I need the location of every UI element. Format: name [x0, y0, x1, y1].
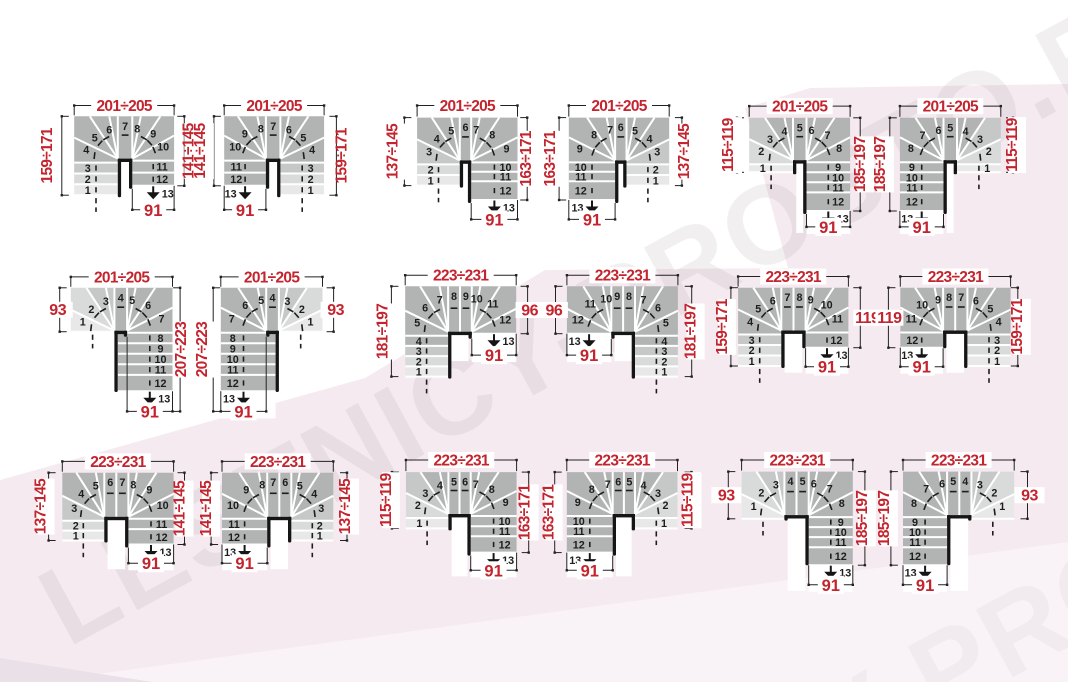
svg-text:11: 11: [573, 526, 584, 538]
svg-text:9: 9: [808, 295, 814, 307]
svg-text:5: 5: [93, 481, 99, 493]
svg-text:6: 6: [286, 124, 292, 136]
svg-text:3: 3: [655, 488, 661, 500]
svg-text:12: 12: [572, 315, 584, 327]
svg-text:3: 3: [654, 146, 660, 158]
svg-text:6: 6: [615, 477, 621, 489]
svg-text:7: 7: [119, 477, 125, 489]
svg-text:5: 5: [626, 477, 632, 489]
svg-text:91: 91: [916, 577, 934, 595]
svg-text:201÷205: 201÷205: [591, 98, 647, 115]
svg-text:91: 91: [484, 562, 502, 580]
svg-text:8: 8: [908, 143, 914, 155]
svg-text:12: 12: [499, 540, 511, 552]
svg-text:8: 8: [451, 291, 457, 303]
svg-text:7: 7: [270, 121, 276, 133]
svg-text:141÷145: 141÷145: [198, 480, 215, 536]
svg-text:7: 7: [473, 479, 479, 491]
svg-text:12: 12: [906, 197, 918, 209]
svg-text:223÷231: 223÷231: [595, 453, 651, 470]
svg-text:1: 1: [999, 501, 1005, 513]
svg-text:10: 10: [821, 300, 833, 312]
svg-text:6: 6: [462, 477, 468, 489]
svg-text:3: 3: [773, 480, 779, 492]
svg-text:11: 11: [832, 314, 843, 326]
svg-text:91: 91: [142, 555, 160, 573]
svg-text:2: 2: [299, 304, 305, 316]
svg-text:4: 4: [962, 126, 968, 138]
svg-text:163÷171: 163÷171: [517, 484, 534, 540]
svg-text:8: 8: [258, 123, 264, 135]
svg-text:1: 1: [428, 175, 434, 187]
svg-text:7: 7: [437, 294, 443, 306]
svg-text:1: 1: [751, 501, 757, 513]
svg-text:11: 11: [156, 519, 167, 531]
svg-text:163÷171: 163÷171: [541, 484, 558, 540]
svg-text:185÷197: 185÷197: [852, 137, 869, 192]
svg-text:8: 8: [796, 292, 802, 304]
svg-text:4: 4: [83, 145, 89, 157]
svg-text:4: 4: [309, 145, 315, 157]
svg-text:11: 11: [228, 519, 239, 531]
svg-text:4: 4: [437, 480, 443, 492]
svg-text:10: 10: [229, 142, 241, 154]
svg-text:12: 12: [227, 378, 239, 390]
svg-text:91: 91: [580, 347, 598, 365]
svg-text:201÷205: 201÷205: [440, 98, 496, 115]
svg-text:3: 3: [103, 296, 109, 308]
svg-text:141÷145: 141÷145: [192, 122, 209, 178]
svg-text:11: 11: [906, 182, 917, 194]
svg-text:4: 4: [640, 480, 646, 492]
svg-text:201÷205: 201÷205: [923, 99, 979, 116]
svg-text:141÷145: 141÷145: [172, 480, 189, 536]
svg-text:12: 12: [575, 186, 587, 198]
svg-text:5: 5: [797, 122, 803, 134]
svg-text:3: 3: [426, 146, 432, 158]
svg-text:11: 11: [906, 314, 917, 326]
svg-text:8: 8: [489, 484, 495, 496]
svg-text:223÷231: 223÷231: [928, 269, 984, 286]
svg-text:6: 6: [282, 477, 288, 489]
svg-text:223÷231: 223÷231: [434, 453, 490, 470]
svg-text:1: 1: [984, 163, 990, 175]
svg-text:115÷119: 115÷119: [680, 472, 697, 527]
svg-text:1: 1: [994, 356, 1000, 368]
svg-text:5: 5: [451, 477, 457, 489]
svg-text:2: 2: [991, 488, 997, 500]
svg-text:1: 1: [749, 356, 755, 368]
svg-text:159÷171: 159÷171: [333, 127, 350, 183]
svg-text:93: 93: [718, 488, 735, 505]
svg-text:9: 9: [935, 295, 941, 307]
svg-text:91: 91: [485, 211, 503, 229]
svg-text:1: 1: [416, 518, 422, 530]
svg-text:1: 1: [661, 518, 667, 530]
svg-text:185÷197: 185÷197: [872, 137, 889, 192]
svg-text:6: 6: [462, 122, 468, 134]
svg-text:9: 9: [577, 143, 583, 155]
svg-text:12: 12: [573, 540, 585, 552]
svg-text:7: 7: [827, 484, 833, 496]
svg-text:12: 12: [909, 551, 921, 563]
svg-text:7: 7: [640, 294, 646, 306]
svg-text:9: 9: [463, 291, 469, 303]
svg-text:8: 8: [259, 480, 265, 492]
svg-text:115÷119: 115÷119: [378, 472, 395, 527]
svg-text:9: 9: [575, 497, 581, 509]
svg-text:137÷145: 137÷145: [33, 478, 50, 534]
svg-text:5: 5: [258, 295, 264, 307]
svg-text:7: 7: [122, 121, 128, 133]
svg-text:5: 5: [300, 132, 306, 144]
svg-text:11: 11: [487, 298, 498, 310]
svg-text:6: 6: [107, 477, 113, 489]
svg-text:7: 7: [607, 125, 613, 137]
svg-text:7: 7: [923, 484, 929, 496]
svg-text:6: 6: [811, 479, 817, 491]
svg-text:6: 6: [618, 122, 624, 134]
svg-text:7: 7: [270, 477, 276, 489]
svg-text:4: 4: [269, 292, 275, 304]
svg-text:12: 12: [830, 335, 842, 347]
svg-text:9: 9: [503, 143, 509, 155]
svg-text:10: 10: [916, 300, 928, 312]
svg-text:91: 91: [485, 347, 503, 365]
svg-text:2: 2: [88, 304, 94, 316]
svg-text:8: 8: [626, 291, 632, 303]
svg-text:11: 11: [156, 162, 167, 174]
svg-text:12: 12: [906, 335, 918, 347]
svg-text:7: 7: [473, 125, 479, 137]
svg-text:8: 8: [134, 123, 140, 135]
svg-text:223÷231: 223÷231: [766, 269, 822, 286]
svg-text:11: 11: [909, 537, 920, 549]
svg-text:7: 7: [784, 292, 790, 304]
svg-text:11: 11: [832, 182, 843, 194]
svg-text:3: 3: [284, 296, 290, 308]
svg-text:5: 5: [755, 304, 761, 316]
svg-text:207÷223: 207÷223: [194, 321, 211, 377]
svg-text:11: 11: [585, 298, 596, 310]
svg-text:5: 5: [414, 318, 420, 330]
svg-text:6: 6: [973, 296, 979, 308]
svg-text:4: 4: [118, 292, 124, 304]
svg-text:13: 13: [225, 188, 237, 200]
svg-text:5: 5: [800, 476, 806, 488]
svg-text:115÷119: 115÷119: [720, 117, 737, 172]
svg-text:223÷231: 223÷231: [770, 453, 826, 470]
svg-text:3: 3: [71, 503, 77, 515]
svg-text:93: 93: [49, 302, 66, 319]
svg-text:223÷231: 223÷231: [250, 454, 306, 471]
svg-text:1: 1: [653, 175, 659, 187]
svg-text:91: 91: [583, 211, 601, 229]
svg-text:5: 5: [129, 295, 135, 307]
svg-text:8: 8: [489, 130, 495, 142]
svg-text:201÷205: 201÷205: [97, 98, 153, 115]
svg-text:6: 6: [770, 296, 776, 308]
svg-text:1: 1: [73, 531, 79, 543]
svg-text:223÷231: 223÷231: [433, 268, 489, 285]
svg-text:12: 12: [230, 174, 242, 186]
svg-text:7: 7: [229, 314, 235, 326]
svg-text:91: 91: [141, 403, 159, 421]
svg-text:12: 12: [228, 532, 240, 544]
svg-text:1: 1: [661, 367, 667, 379]
svg-text:159÷171: 159÷171: [1009, 298, 1026, 354]
svg-text:5: 5: [663, 318, 669, 330]
svg-text:137÷145: 137÷145: [337, 478, 354, 534]
svg-text:1: 1: [760, 163, 766, 175]
svg-text:3: 3: [318, 503, 324, 515]
svg-text:13: 13: [162, 188, 174, 200]
svg-text:185÷197: 185÷197: [854, 491, 871, 546]
svg-text:185÷197: 185÷197: [876, 491, 893, 546]
svg-text:10: 10: [600, 293, 612, 305]
svg-text:12: 12: [499, 315, 511, 327]
svg-text:207÷223: 207÷223: [173, 321, 190, 377]
svg-text:6: 6: [655, 302, 661, 314]
svg-text:119: 119: [877, 310, 902, 327]
svg-text:6: 6: [939, 479, 945, 491]
svg-text:6: 6: [145, 300, 151, 312]
svg-text:12: 12: [156, 532, 168, 544]
svg-text:6: 6: [935, 125, 941, 137]
svg-text:5: 5: [297, 481, 303, 493]
svg-text:201÷205: 201÷205: [244, 269, 300, 286]
svg-text:4: 4: [434, 134, 440, 146]
svg-text:96: 96: [521, 303, 538, 320]
svg-text:4: 4: [996, 317, 1002, 329]
svg-text:8: 8: [589, 484, 595, 496]
svg-text:93: 93: [327, 302, 344, 319]
svg-text:2: 2: [662, 500, 668, 512]
svg-text:11: 11: [835, 537, 846, 549]
svg-text:3: 3: [977, 134, 983, 146]
svg-text:4: 4: [787, 476, 793, 488]
svg-text:6: 6: [808, 125, 814, 137]
svg-text:8: 8: [591, 130, 597, 142]
svg-text:1: 1: [308, 185, 314, 197]
svg-text:91: 91: [818, 359, 836, 377]
svg-text:163÷171: 163÷171: [542, 130, 559, 186]
svg-text:10: 10: [157, 500, 169, 512]
svg-text:91: 91: [913, 359, 931, 377]
svg-text:11: 11: [155, 365, 166, 377]
svg-text:6: 6: [242, 300, 248, 312]
svg-text:11: 11: [575, 172, 586, 184]
svg-text:5: 5: [950, 476, 956, 488]
svg-text:91: 91: [822, 577, 840, 595]
svg-text:137÷145: 137÷145: [384, 123, 401, 179]
svg-text:9: 9: [503, 497, 509, 509]
svg-text:5: 5: [987, 304, 993, 316]
svg-text:2: 2: [758, 146, 764, 158]
svg-text:91: 91: [913, 219, 931, 237]
svg-text:91: 91: [581, 562, 599, 580]
svg-text:8: 8: [911, 498, 917, 510]
svg-text:91: 91: [144, 202, 162, 220]
svg-text:11: 11: [500, 172, 511, 184]
svg-text:96: 96: [546, 303, 563, 320]
svg-text:7: 7: [158, 314, 164, 326]
svg-text:4: 4: [646, 134, 652, 146]
svg-text:3: 3: [977, 480, 983, 492]
svg-text:1: 1: [85, 185, 91, 197]
svg-text:12: 12: [499, 186, 511, 198]
svg-text:4: 4: [311, 489, 317, 501]
svg-text:5: 5: [92, 132, 98, 144]
svg-text:2: 2: [415, 500, 421, 512]
svg-text:11: 11: [230, 162, 241, 174]
svg-text:10: 10: [157, 142, 169, 154]
svg-text:3: 3: [422, 488, 428, 500]
svg-text:9: 9: [242, 128, 248, 140]
svg-text:5: 5: [947, 122, 953, 134]
svg-text:223÷231: 223÷231: [90, 454, 146, 471]
svg-text:159÷171: 159÷171: [39, 127, 56, 183]
svg-text:11: 11: [499, 526, 510, 538]
svg-text:4: 4: [781, 126, 787, 138]
svg-text:12: 12: [154, 378, 166, 390]
svg-text:6: 6: [106, 124, 112, 136]
svg-text:181÷197: 181÷197: [374, 304, 391, 359]
svg-text:91: 91: [819, 219, 837, 237]
svg-text:4: 4: [78, 489, 84, 501]
svg-text:5: 5: [632, 126, 638, 138]
svg-text:10: 10: [471, 293, 483, 305]
svg-text:9: 9: [150, 128, 156, 140]
svg-text:201÷205: 201÷205: [772, 99, 828, 116]
svg-text:201÷205: 201÷205: [94, 269, 150, 286]
svg-text:7: 7: [919, 130, 925, 142]
svg-text:2: 2: [758, 488, 764, 500]
svg-text:223÷231: 223÷231: [931, 453, 987, 470]
svg-text:4: 4: [962, 476, 968, 488]
svg-text:8: 8: [946, 292, 952, 304]
svg-text:181÷197: 181÷197: [683, 304, 700, 359]
svg-text:10: 10: [227, 500, 239, 512]
svg-text:201÷205: 201÷205: [246, 98, 302, 115]
svg-text:2: 2: [986, 146, 992, 158]
svg-text:1: 1: [80, 317, 86, 329]
svg-text:12: 12: [835, 551, 847, 563]
svg-text:91: 91: [236, 202, 254, 220]
svg-text:3: 3: [767, 134, 773, 146]
svg-text:115÷119: 115÷119: [1004, 117, 1021, 172]
svg-text:7: 7: [605, 479, 611, 491]
svg-text:1: 1: [307, 317, 313, 329]
svg-text:1: 1: [317, 531, 323, 543]
svg-text:12: 12: [832, 197, 844, 209]
svg-text:11: 11: [227, 365, 238, 377]
svg-text:12: 12: [156, 174, 168, 186]
svg-text:223÷231: 223÷231: [595, 268, 651, 285]
svg-text:4: 4: [747, 317, 753, 329]
svg-text:93: 93: [1021, 488, 1038, 505]
svg-text:91: 91: [235, 555, 253, 573]
svg-text:7: 7: [958, 292, 964, 304]
svg-text:91: 91: [234, 403, 252, 421]
svg-text:159÷171: 159÷171: [714, 298, 731, 354]
svg-text:163÷171: 163÷171: [518, 130, 535, 186]
svg-text:9: 9: [614, 291, 620, 303]
svg-text:137÷145: 137÷145: [676, 123, 693, 179]
svg-text:8: 8: [130, 480, 136, 492]
svg-text:9: 9: [146, 485, 152, 497]
svg-text:5: 5: [448, 126, 454, 138]
svg-text:6: 6: [422, 302, 428, 314]
svg-text:9: 9: [243, 485, 249, 497]
svg-text:8: 8: [836, 143, 842, 155]
svg-text:7: 7: [824, 130, 830, 142]
svg-text:8: 8: [839, 498, 845, 510]
svg-text:1: 1: [416, 367, 422, 379]
